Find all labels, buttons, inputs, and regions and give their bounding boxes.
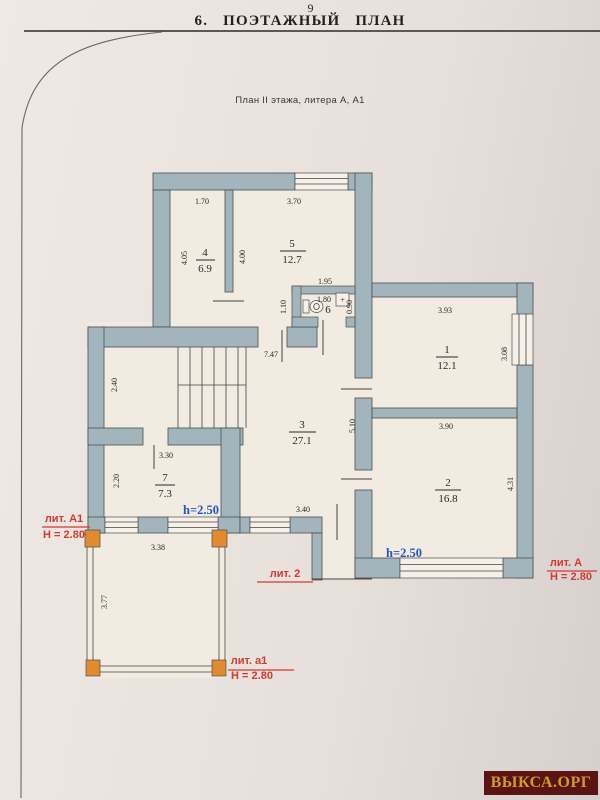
- wall: [290, 517, 322, 533]
- svg-text:7.3: 7.3: [158, 488, 172, 500]
- wc-wall: [346, 317, 355, 327]
- height-note-room2: h=2.50: [386, 546, 422, 560]
- wall: [153, 173, 295, 190]
- svg-text:лит. 2: лит. 2: [270, 568, 300, 580]
- balcony-post: [212, 660, 226, 676]
- svg-text:6: 6: [325, 304, 331, 316]
- svg-text:3: 3: [299, 419, 305, 431]
- room-interiors: [85, 173, 533, 678]
- window: [168, 517, 218, 533]
- balcony-post: [212, 530, 227, 547]
- dim-porch-width: 3.38: [151, 543, 165, 552]
- svg-text:Н = 2.80: Н = 2.80: [550, 571, 592, 583]
- svg-text:лит. А: лит. А: [550, 557, 582, 569]
- svg-text:Н = 2.80: Н = 2.80: [231, 670, 273, 682]
- dim-room1-height: 3.08: [500, 347, 509, 361]
- dim-room7-height: 2.20: [112, 474, 121, 488]
- svg-text:27.1: 27.1: [292, 435, 311, 447]
- wall: [153, 190, 170, 327]
- dim-room2-width: 3.90: [439, 422, 453, 431]
- liter-a1-upper: лит. А1 Н = 2.80: [42, 513, 90, 541]
- dim-room2-height: 4.31: [506, 477, 515, 491]
- wall: [355, 398, 372, 470]
- dim-wc-height: 0.90: [345, 300, 354, 314]
- balcony-post: [86, 660, 100, 676]
- svg-text:12.1: 12.1: [437, 360, 456, 372]
- svg-text:16.8: 16.8: [438, 493, 458, 505]
- wall: [138, 517, 168, 533]
- svg-text:2: 2: [445, 477, 451, 489]
- wall-room4-room5: [225, 190, 233, 292]
- dim-room1-width: 3.93: [438, 306, 452, 315]
- wall: [517, 365, 533, 578]
- scanned-document-page: 9 6. ПОЭТАЖНЫЙ ПЛАН План II этажа, литер…: [0, 0, 600, 800]
- wc-wall: [292, 317, 318, 327]
- floor-plan-drawing: + 1.70 3.70 4.05 4.00 1.95 1.80 1.10 0.9…: [0, 0, 600, 800]
- svg-text:7: 7: [162, 472, 168, 484]
- svg-text:5: 5: [289, 238, 295, 250]
- room-6-label: 6: [325, 304, 331, 316]
- dim-room5-width: 3.70: [287, 197, 301, 206]
- height-note-room7: h=2.50: [183, 503, 219, 517]
- wall: [88, 327, 258, 347]
- wall: [240, 517, 250, 533]
- wall: [287, 327, 317, 347]
- svg-text:лит. а1: лит. а1: [231, 655, 268, 667]
- svg-text:1: 1: [444, 344, 450, 356]
- svg-text:6.9: 6.9: [198, 263, 212, 275]
- dim-wc-outer-height: 1.10: [279, 300, 288, 314]
- window: [400, 558, 503, 578]
- svg-text:Н = 2.80: Н = 2.80: [43, 529, 85, 541]
- wall: [517, 283, 533, 315]
- dim-wc-width: 1.80: [317, 295, 331, 304]
- dim-room7-width: 3.30: [159, 451, 173, 460]
- dim-room5-height: 4.00: [238, 250, 247, 264]
- window: [512, 314, 533, 365]
- wall: [503, 558, 533, 578]
- dim-room4-width: 1.70: [195, 197, 209, 206]
- svg-text:4: 4: [202, 247, 208, 259]
- svg-text:лит. А1: лит. А1: [45, 513, 83, 525]
- dim-hall-width: 7.47: [264, 350, 278, 359]
- balcony-post: [85, 530, 100, 547]
- liter-a1-lower: лит. а1 Н = 2.80: [228, 655, 294, 682]
- dim-room3-height: 5.10: [348, 419, 357, 433]
- window: [295, 173, 348, 190]
- wall: [372, 283, 533, 297]
- svg-text:12.7: 12.7: [282, 254, 302, 266]
- wall: [355, 558, 400, 578]
- dim-wc-outer-width: 1.95: [318, 277, 332, 286]
- liter-a: лит. А Н = 2.80: [547, 557, 597, 583]
- dim-balcony-height: 3.77: [100, 595, 109, 609]
- dim-stairhall-height: 2.40: [110, 378, 119, 392]
- liter-2: лит. 2: [257, 568, 313, 582]
- porch-wall: [312, 533, 322, 580]
- wall-room1-room2: [372, 408, 517, 418]
- dim-room4-height: 4.05: [180, 251, 189, 265]
- dim-room3-width: 3.40: [296, 505, 310, 514]
- watermark-badge: ВЫКСА.ОРГ: [484, 771, 598, 795]
- window: [105, 517, 138, 533]
- wall: [355, 173, 372, 378]
- window: [250, 517, 290, 533]
- wall: [88, 428, 143, 445]
